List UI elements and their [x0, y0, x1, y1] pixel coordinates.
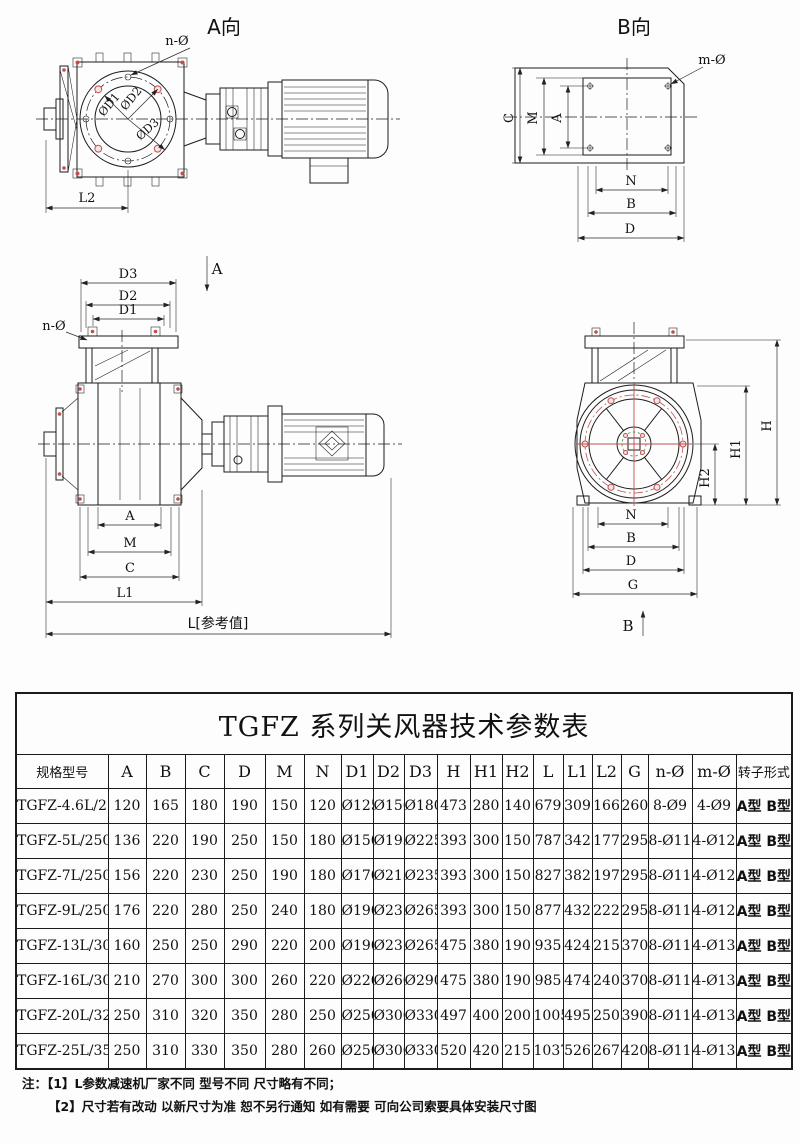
spec-cell: 250: [108, 999, 146, 1034]
column-header-8: D2: [373, 755, 404, 789]
n-hole-label-view-a: n-Ø: [165, 34, 188, 49]
note-line-1: 注：【1】L参数减速机厂家不同 型号不同 尺寸略有不同；: [22, 1077, 537, 1091]
spec-cell: 220: [265, 929, 304, 964]
spec-cell: 180: [304, 824, 341, 859]
dim-label-a-side: A: [124, 509, 135, 524]
spec-cell: 250: [185, 929, 224, 964]
spec-cell: TGFZ-25L/350: [16, 1034, 108, 1070]
spec-cell: Ø190: [341, 929, 373, 964]
footnotes: 注：【1】L参数减速机厂家不同 型号不同 尺寸略有不同； 【2】尺寸若有改动 以…: [22, 1077, 537, 1114]
spec-cell: TGFZ-7L/250: [16, 859, 108, 894]
dim-label-a-viewb: A: [550, 113, 565, 124]
column-header-1: A: [108, 755, 146, 789]
spec-cell: 300: [185, 964, 224, 999]
spec-table: TGFZ 系列关风器技术参数表 规格型号ABCDMND1D2D3HH1H2LL1…: [15, 692, 793, 1070]
spec-cell: TGFZ-20L/320: [16, 999, 108, 1034]
spec-cell: Ø265: [404, 929, 437, 964]
spec-cell: Ø213: [373, 859, 404, 894]
spec-cell: 280: [470, 789, 502, 824]
spec-cell: 380: [470, 964, 502, 999]
section-b-label: B: [622, 617, 633, 635]
spec-cell: 342: [563, 824, 592, 859]
spec-cell: 150: [502, 894, 533, 929]
spec-cell: 150: [265, 824, 304, 859]
spec-cell: 4-Ø9: [692, 789, 736, 824]
spec-cell: 200: [304, 929, 341, 964]
view-a-drawing: A向 ØD1: [36, 15, 400, 213]
spec-cell: 300: [470, 859, 502, 894]
spec-cell: 250: [224, 859, 265, 894]
spec-cell: 309: [563, 789, 592, 824]
spec-cell: 4-Ø12: [692, 824, 736, 859]
spec-cell: Ø150: [341, 824, 373, 859]
spec-cell: 240: [592, 964, 621, 999]
spec-cell: Ø125: [341, 789, 373, 824]
spec-cell: 8-Ø11: [648, 859, 692, 894]
spec-cell: 280: [265, 999, 304, 1034]
spec-cell: A型 B型: [736, 824, 792, 859]
column-header-3: C: [185, 755, 224, 789]
spec-cell: 197: [592, 859, 621, 894]
dim-label-b-viewb: B: [626, 197, 636, 212]
spec-cell: 475: [437, 929, 470, 964]
spec-cell: 210: [108, 964, 146, 999]
spec-cell: A型 B型: [736, 894, 792, 929]
spec-cell: 156: [108, 859, 146, 894]
spec-cell: Ø300: [373, 1034, 404, 1070]
spec-cell: 250: [592, 999, 621, 1034]
column-header-6: N: [304, 755, 341, 789]
spec-cell: 4-Ø12: [692, 894, 736, 929]
view-b-title: B向: [617, 15, 651, 39]
spec-cell: Ø250: [341, 1034, 373, 1070]
spec-cell: TGFZ-13L/300: [16, 929, 108, 964]
spec-cell: 8-Ø11: [648, 999, 692, 1034]
spec-cell: 290: [224, 929, 265, 964]
spec-cell: 220: [304, 964, 341, 999]
column-header-17: n-Ø: [648, 755, 692, 789]
spec-cell: Ø237: [373, 894, 404, 929]
spec-cell: 190: [185, 824, 224, 859]
spec-row: TGFZ-5L/250136220190250150180Ø150Ø193Ø22…: [16, 824, 792, 859]
dim-label-h: H: [760, 420, 775, 431]
spec-cell: Ø237: [373, 929, 404, 964]
spec-cell: Ø265: [404, 894, 437, 929]
spec-row: TGFZ-9L/250176220280250240180Ø190Ø237Ø26…: [16, 894, 792, 929]
dim-label-m-side: M: [123, 536, 136, 551]
dim-label-d1: D1: [119, 303, 138, 318]
spec-cell: 827: [533, 859, 563, 894]
spec-cell: 250: [146, 929, 185, 964]
spec-cell: 787: [533, 824, 563, 859]
spec-cell: 495: [563, 999, 592, 1034]
side-view-drawing: A D3 D2 D1 n-Ø: [38, 256, 402, 638]
spec-cell: 300: [470, 894, 502, 929]
spec-cell: 160: [108, 929, 146, 964]
spec-cell: 165: [146, 789, 185, 824]
spec-cell: Ø220: [341, 964, 373, 999]
view-b-drawing: B向 m-Ø C M A N B: [502, 15, 726, 242]
spec-cell: 475: [437, 964, 470, 999]
dim-label-l1: L1: [117, 586, 134, 601]
column-header-5: M: [265, 755, 304, 789]
spec-cell: Ø225: [404, 824, 437, 859]
spec-sheet-page: A向 ØD1: [0, 0, 800, 1145]
dim-label-c-viewb: C: [502, 113, 517, 123]
column-header-14: L1: [563, 755, 592, 789]
spec-cell: 300: [470, 824, 502, 859]
spec-cell: Ø180: [404, 789, 437, 824]
spec-cell: 8-Ø11: [648, 964, 692, 999]
dim-label-d-end: D: [626, 554, 636, 569]
spec-cell: 176: [108, 894, 146, 929]
n-hole-label-side: n-Ø: [42, 319, 65, 334]
spec-cell: TGFZ-4.6L/210: [16, 789, 108, 824]
spec-cell: 250: [224, 894, 265, 929]
dim-label-h1: H1: [729, 439, 744, 459]
motor-logo: [319, 431, 345, 456]
spec-cell: 270: [146, 964, 185, 999]
spec-cell: 8-Ø11: [648, 894, 692, 929]
spec-row: TGFZ-20L/320250310320350280250Ø250Ø300Ø3…: [16, 999, 792, 1034]
spec-cell: TGFZ-16L/300: [16, 964, 108, 999]
spec-cell: A型 B型: [736, 929, 792, 964]
spec-cell: 220: [146, 894, 185, 929]
spec-cell: 350: [224, 1034, 265, 1070]
spec-cell: 295: [621, 824, 648, 859]
spec-cell: 393: [437, 894, 470, 929]
dim-label-d-viewb: D: [625, 222, 635, 237]
spec-cell: 220: [146, 824, 185, 859]
spec-cell: 679: [533, 789, 563, 824]
dim-label-c-side: C: [125, 561, 135, 576]
side-motor-fins: [284, 420, 364, 470]
spec-cell: A型 B型: [736, 999, 792, 1034]
spec-cell: 473: [437, 789, 470, 824]
spec-cell: Ø190: [341, 894, 373, 929]
spec-cell: 190: [502, 964, 533, 999]
dim-label-l2: L2: [79, 191, 96, 206]
dim-label-g: G: [628, 578, 638, 593]
spec-cell: Ø193: [373, 824, 404, 859]
spec-cell: 280: [185, 894, 224, 929]
spec-cell: 150: [265, 789, 304, 824]
spec-cell: 250: [108, 1034, 146, 1070]
spec-cell: 260: [621, 789, 648, 824]
note-line-2: 【2】尺寸若有改动 以新尺寸为准 恕不另行通知 如有需要 可向公司索要具体安装尺…: [22, 1100, 537, 1114]
spec-cell: 8-Ø11: [648, 1034, 692, 1070]
spec-cell: 526: [563, 1034, 592, 1070]
column-header-0: 规格型号: [16, 755, 108, 789]
spec-cell: TGFZ-5L/250: [16, 824, 108, 859]
view-a-title: A向: [207, 15, 241, 39]
column-header-12: H2: [502, 755, 533, 789]
spec-cell: 250: [224, 824, 265, 859]
technical-drawing: A向 ØD1: [0, 0, 800, 676]
spec-cell: 310: [146, 1034, 185, 1070]
spec-cell: 136: [108, 824, 146, 859]
spec-cell: 140: [502, 789, 533, 824]
spec-cell: A型 B型: [736, 789, 792, 824]
spec-cell: 350: [224, 999, 265, 1034]
spec-cell: Ø330: [404, 1034, 437, 1070]
spec-cell: Ø260: [373, 964, 404, 999]
spec-cell: 4-Ø13: [692, 999, 736, 1034]
spec-cell: 180: [185, 789, 224, 824]
column-header-2: B: [146, 755, 185, 789]
spec-cell: 150: [502, 824, 533, 859]
spec-cell: 8-Ø11: [648, 929, 692, 964]
spec-cell: 177: [592, 824, 621, 859]
dim-label-n-end: N: [625, 508, 636, 523]
spec-cell: TGFZ-9L/250: [16, 894, 108, 929]
spec-cell: 260: [304, 1034, 341, 1070]
spec-row: TGFZ-13L/300160250250290220200Ø190Ø237Ø2…: [16, 929, 792, 964]
spec-cell: 8-Ø9: [648, 789, 692, 824]
spec-cell: Ø290: [404, 964, 437, 999]
dim-label-d2: D2: [119, 289, 138, 304]
spec-cell: 260: [265, 964, 304, 999]
column-header-11: H1: [470, 755, 502, 789]
section-a-label: A: [211, 260, 223, 278]
spec-cell: 1005: [533, 999, 563, 1034]
spec-cell: 8-Ø11: [648, 824, 692, 859]
spec-cell: 120: [108, 789, 146, 824]
spec-cell: 424: [563, 929, 592, 964]
spec-cell: 280: [265, 1034, 304, 1070]
column-header-7: D1: [341, 755, 373, 789]
spec-cell: 474: [563, 964, 592, 999]
spec-cell: 380: [470, 929, 502, 964]
column-header-15: L2: [592, 755, 621, 789]
spec-cell: 150: [502, 859, 533, 894]
spec-cell: 420: [470, 1034, 502, 1070]
spec-cell: 393: [437, 859, 470, 894]
end-view-drawing: H2 H1 H N B D G B: [573, 322, 781, 636]
spec-row: TGFZ-25L/350250310330350280260Ø250Ø300Ø3…: [16, 1034, 792, 1070]
spec-cell: 190: [224, 789, 265, 824]
spec-row: TGFZ-16L/300210270300300260220Ø220Ø260Ø2…: [16, 964, 792, 999]
spec-cell: 4-Ø12: [692, 859, 736, 894]
spec-cell: 1037: [533, 1034, 563, 1070]
spec-cell: 300: [224, 964, 265, 999]
spec-cell: A型 B型: [736, 859, 792, 894]
spec-cell: 190: [502, 929, 533, 964]
spec-cell: 215: [502, 1034, 533, 1070]
spec-cell: 295: [621, 859, 648, 894]
spec-cell: 222: [592, 894, 621, 929]
spec-cell: 120: [304, 789, 341, 824]
spec-cell: A型 B型: [736, 964, 792, 999]
spec-cell: Ø170: [341, 859, 373, 894]
spec-cell: 877: [533, 894, 563, 929]
spec-cell: 370: [621, 964, 648, 999]
column-header-18: m-Ø: [692, 755, 736, 789]
spec-cell: 330: [185, 1034, 224, 1070]
table-header-row: 规格型号ABCDMND1D2D3HH1H2LL1L2Gn-Øm-Ø转子形式: [16, 755, 792, 789]
table-title-row: TGFZ 系列关风器技术参数表: [16, 693, 792, 755]
spec-cell: 295: [621, 894, 648, 929]
spec-cell: 180: [304, 859, 341, 894]
spec-cell: 220: [146, 859, 185, 894]
spec-cell: Ø156: [373, 789, 404, 824]
spec-cell: 4-Ø13: [692, 1034, 736, 1070]
dim-label-m-viewb: M: [526, 111, 541, 124]
spec-cell: 190: [265, 859, 304, 894]
spec-cell: 240: [265, 894, 304, 929]
spec-cell: 393: [437, 824, 470, 859]
spec-cell: 400: [470, 999, 502, 1034]
spec-cell: 985: [533, 964, 563, 999]
column-header-19: 转子形式: [736, 755, 792, 789]
m-hole-label-view-b: m-Ø: [698, 53, 725, 68]
spec-cell: 310: [146, 999, 185, 1034]
spec-cell: 420: [621, 1034, 648, 1070]
spec-cell: 497: [437, 999, 470, 1034]
column-header-9: D3: [404, 755, 437, 789]
column-header-16: G: [621, 755, 648, 789]
dim-label-l-ref: L[参考值]: [188, 615, 249, 632]
spec-cell: 935: [533, 929, 563, 964]
spec-cell: 200: [502, 999, 533, 1034]
dim-label-d3: D3: [119, 267, 138, 282]
spec-cell: 215: [592, 929, 621, 964]
spec-cell: 250: [304, 999, 341, 1034]
spec-cell: Ø300: [373, 999, 404, 1034]
spec-cell: 390: [621, 999, 648, 1034]
spec-row: TGFZ-4.6L/210120165180190150120Ø125Ø156Ø…: [16, 789, 792, 824]
spec-cell: 520: [437, 1034, 470, 1070]
spec-cell: 230: [185, 859, 224, 894]
column-header-10: H: [437, 755, 470, 789]
spec-cell: Ø330: [404, 999, 437, 1034]
spec-cell: 267: [592, 1034, 621, 1070]
spec-cell: 180: [304, 894, 341, 929]
spec-cell: A型 B型: [736, 1034, 792, 1070]
column-header-4: D: [224, 755, 265, 789]
spec-cell: 370: [621, 929, 648, 964]
spec-row: TGFZ-7L/250156220230250190180Ø170Ø213Ø23…: [16, 859, 792, 894]
spec-cell: 4-Ø13: [692, 964, 736, 999]
column-header-13: L: [533, 755, 563, 789]
spec-cell: Ø235: [404, 859, 437, 894]
spec-cell: 166: [592, 789, 621, 824]
spec-table-wrap: TGFZ 系列关风器技术参数表 规格型号ABCDMND1D2D3HH1H2LL1…: [15, 692, 793, 1070]
dim-label-b-end: B: [626, 531, 636, 546]
spec-cell: 382: [563, 859, 592, 894]
spec-cell: 320: [185, 999, 224, 1034]
table-title: TGFZ 系列关风器技术参数表: [16, 693, 792, 755]
spec-cell: Ø250: [341, 999, 373, 1034]
spec-cell: 432: [563, 894, 592, 929]
dim-label-h2: H2: [698, 468, 713, 488]
spec-cell: 4-Ø13: [692, 929, 736, 964]
dim-label-n-viewb: N: [625, 174, 636, 189]
